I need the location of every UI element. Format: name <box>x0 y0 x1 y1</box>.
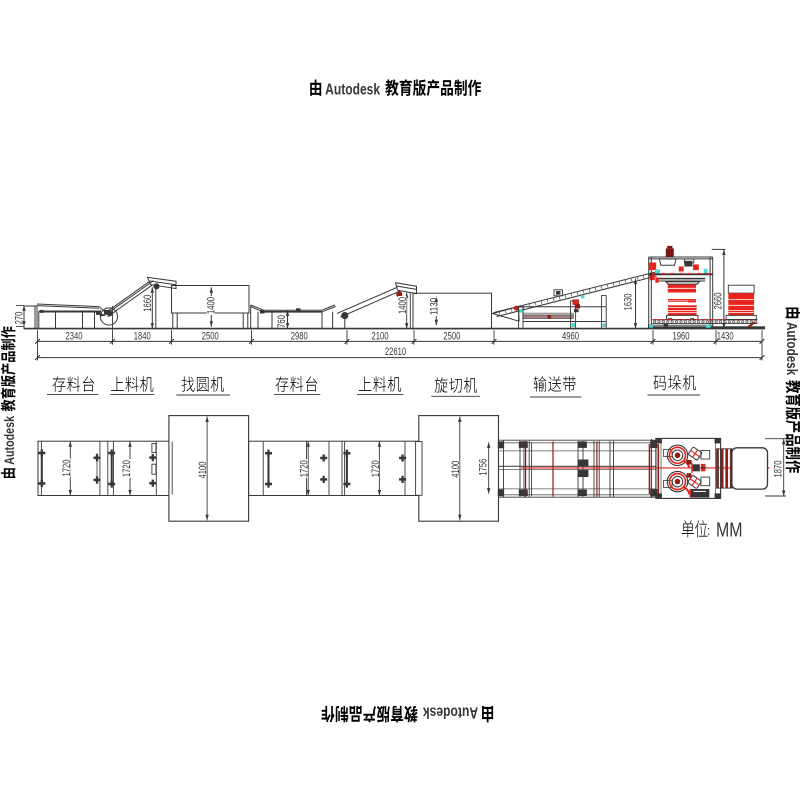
svg-text:1840: 1840 <box>134 330 151 342</box>
svg-text:22610: 22610 <box>385 346 406 358</box>
svg-text:Autodesk: Autodesk <box>423 704 479 721</box>
svg-text:2100: 2100 <box>372 330 389 342</box>
svg-text:1400: 1400 <box>206 297 218 314</box>
svg-text:4100: 4100 <box>450 461 462 478</box>
svg-text:1660: 1660 <box>142 295 154 312</box>
svg-text:Autodesk: Autodesk <box>325 81 380 98</box>
svg-text:Autodesk: Autodesk <box>783 322 799 376</box>
svg-text:1720: 1720 <box>61 460 73 477</box>
svg-text:1400: 1400 <box>397 297 409 314</box>
svg-text:2340: 2340 <box>66 330 83 342</box>
svg-text:760: 760 <box>276 315 288 328</box>
svg-text:1720: 1720 <box>299 460 311 477</box>
svg-text:2500: 2500 <box>443 330 460 342</box>
svg-text::: : <box>707 523 711 538</box>
svg-text:1870: 1870 <box>773 461 785 478</box>
svg-text:1630: 1630 <box>622 294 634 311</box>
svg-text:2500: 2500 <box>202 330 219 342</box>
svg-text:2660: 2660 <box>713 293 725 310</box>
svg-text:1430: 1430 <box>717 330 734 342</box>
svg-text:1960: 1960 <box>673 330 690 342</box>
svg-text:4100: 4100 <box>197 462 209 479</box>
svg-text:Autodesk: Autodesk <box>2 416 17 465</box>
svg-text:1130: 1130 <box>429 298 441 315</box>
svg-text:MM: MM <box>716 520 743 542</box>
svg-text:2980: 2980 <box>291 330 308 342</box>
svg-text:1720: 1720 <box>121 460 133 477</box>
svg-text:1720: 1720 <box>370 460 382 477</box>
svg-text:4960: 4960 <box>562 330 579 342</box>
svg-text:270: 270 <box>14 312 26 325</box>
svg-text:1756: 1756 <box>477 459 489 476</box>
